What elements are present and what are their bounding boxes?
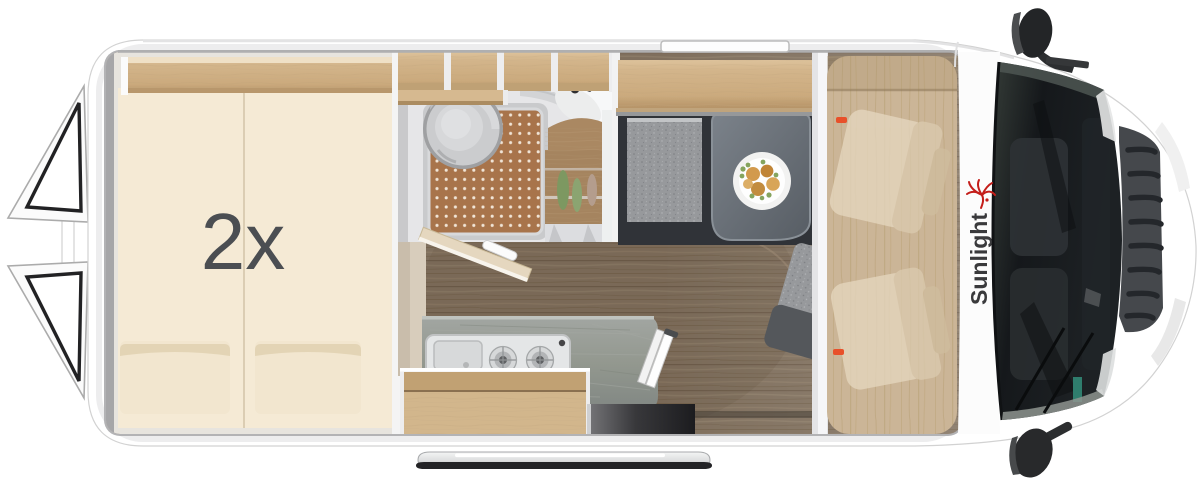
svg-text:2x: 2x [201, 197, 286, 286]
svg-text:Sunlight: Sunlight [966, 213, 992, 305]
